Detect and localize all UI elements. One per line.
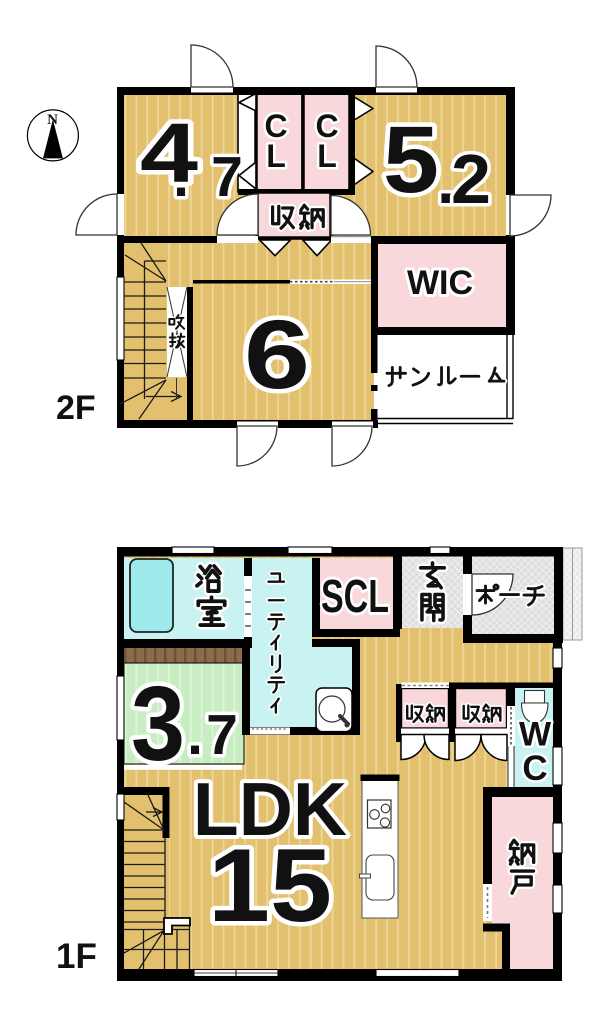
svg-text:3: 3	[131, 665, 185, 783]
svg-text:5: 5	[383, 107, 439, 213]
svg-text:7: 7	[206, 703, 238, 767]
svg-text:SCL: SCL	[321, 570, 389, 622]
svg-text:L: L	[266, 138, 286, 174]
svg-text:.: .	[187, 703, 203, 767]
svg-text:2: 2	[451, 140, 491, 218]
svg-text:L: L	[317, 138, 337, 174]
svg-text:7: 7	[211, 145, 243, 209]
svg-text:W: W	[519, 716, 552, 754]
svg-text:WIC: WIC	[407, 264, 473, 302]
svg-text:15: 15	[208, 828, 332, 944]
svg-text:1F: 1F	[56, 937, 97, 976]
svg-text:6: 6	[244, 300, 310, 409]
svg-text:N: N	[47, 112, 58, 128]
svg-text:C: C	[522, 749, 547, 788]
svg-text:2F: 2F	[56, 389, 96, 427]
svg-text:4: 4	[140, 106, 198, 200]
svg-text:.: .	[173, 145, 189, 209]
